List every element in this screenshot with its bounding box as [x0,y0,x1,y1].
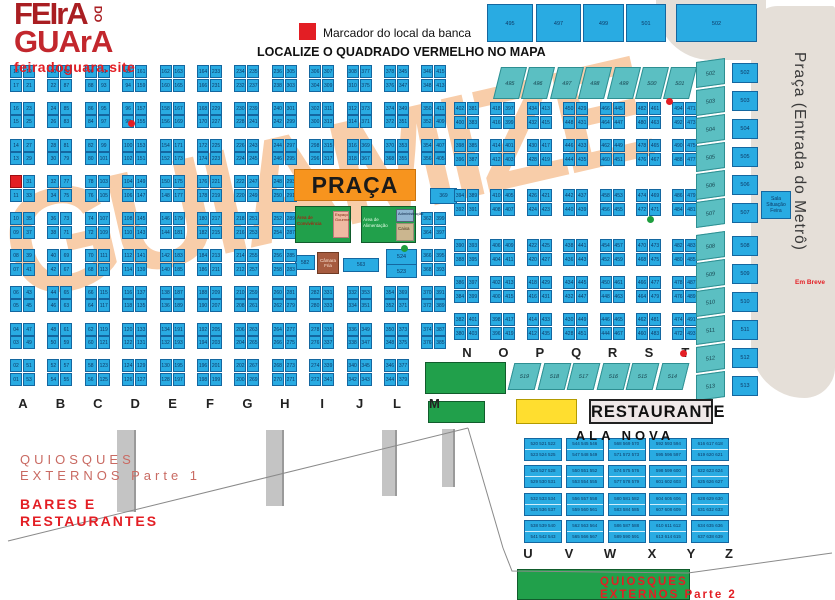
stall-cell-426[interactable]: 426 [527,189,539,202]
stall-cell-370[interactable]: 370 [421,286,433,299]
stall-cell-433[interactable]: 433 [576,139,588,152]
stall-cell-53[interactable]: 53 [23,373,35,386]
stall-cell-464[interactable]: 464 [636,290,648,303]
stall-cell-429[interactable]: 429 [540,276,552,289]
stall-cell-240[interactable]: 240 [272,102,284,115]
stall-cell-121[interactable]: 121 [98,336,110,349]
stall-cell-112[interactable]: 112 [122,249,134,262]
stall-cell-43[interactable]: 43 [23,286,35,299]
stall-cell-161[interactable]: 161 [135,65,147,78]
stall-cell-164[interactable]: 164 [197,65,209,78]
stall-cell-228[interactable]: 228 [234,115,246,128]
ala-nova-block[interactable]: 532 533 534535 536 537 [524,493,562,516]
stall-cell-449[interactable]: 449 [576,313,588,326]
stall-cell-453[interactable]: 453 [613,189,625,202]
stall-cell-347[interactable]: 347 [360,336,372,349]
stall-cell-78[interactable]: 78 [85,175,97,188]
stall-cell-397[interactable]: 397 [467,276,479,289]
stall-cell-80[interactable]: 80 [85,152,97,165]
stall-cell-298[interactable]: 298 [309,139,321,152]
stall-cell-side-510[interactable]: 510 [732,292,758,312]
stall-cell-376[interactable]: 376 [384,79,396,92]
stall-cell-390[interactable]: 390 [454,239,466,252]
stall-cell-435[interactable]: 435 [540,327,552,340]
stall-cell-484[interactable]: 484 [672,203,684,216]
stall-cell-477[interactable]: 477 [649,276,661,289]
stall-cell-393[interactable]: 393 [467,239,479,252]
stall-cell-side-505[interactable]: 505 [732,147,758,167]
stall-cell-368[interactable]: 368 [421,263,433,276]
stall-cell-449[interactable]: 449 [613,139,625,152]
stall-cell-115[interactable]: 115 [98,286,110,299]
stall-cell-258[interactable]: 258 [272,263,284,276]
stall-cell-217[interactable]: 217 [210,212,222,225]
stall-cell-467[interactable]: 467 [613,327,625,340]
stall-cell-460[interactable]: 460 [636,327,648,340]
gate-cell-side-511[interactable]: 511 [696,315,725,345]
stall-cell-407[interactable]: 407 [434,139,446,152]
stall-cell-395[interactable]: 395 [467,253,479,266]
stall-cell-224[interactable]: 224 [234,152,246,165]
stall-cell-389[interactable]: 389 [434,299,446,312]
stall-cell-415[interactable]: 415 [540,116,552,129]
stall-cell-221[interactable]: 221 [210,175,222,188]
stall-cell-332[interactable]: 332 [347,286,359,299]
stall-cell-275[interactable]: 275 [285,336,297,349]
ala-nova-block[interactable]: 586 587 588589 590 591 [608,520,646,543]
stall-cell-262[interactable]: 262 [272,299,284,312]
stall-cell-259[interactable]: 259 [247,286,259,299]
stall-cell-215[interactable]: 215 [210,226,222,239]
stall-cell-22[interactable]: 22 [47,79,59,92]
stall-cell-403[interactable]: 403 [503,153,515,166]
stall-cell-188[interactable]: 188 [197,286,209,299]
stall-cell-399[interactable]: 399 [503,116,515,129]
stall-cell-417[interactable]: 417 [503,313,515,326]
stall-cell-166[interactable]: 166 [197,79,209,92]
stall-cell-277[interactable]: 277 [285,323,297,336]
stall-cell-side-513[interactable]: 513 [732,376,758,396]
stall-cell-139[interactable]: 139 [135,263,147,276]
stall-cell-412[interactable]: 412 [490,153,502,166]
stall-cell-429[interactable]: 429 [576,102,588,115]
stall-cell-252[interactable]: 252 [272,212,284,225]
stall-cell-38[interactable]: 38 [47,226,59,239]
stall-cell-303[interactable]: 303 [285,79,297,92]
stall-cell-49[interactable]: 49 [23,336,35,349]
stall-cell-271[interactable]: 271 [285,373,297,386]
stall-cell-40[interactable]: 40 [47,249,59,262]
stall-cell-135[interactable]: 135 [135,299,147,312]
stall-cell-393[interactable]: 393 [434,263,446,276]
stall-cell-353[interactable]: 353 [397,139,409,152]
stall-cell-308[interactable]: 308 [347,65,359,78]
stall-cell-02[interactable]: 02 [10,359,22,372]
stall-cell-03[interactable]: 03 [10,336,22,349]
stall-cell-383[interactable]: 383 [467,116,479,129]
ala-nova-block[interactable]: 562 563 564565 566 567 [566,520,604,543]
stall-cell-88[interactable]: 88 [85,79,97,92]
stall-cell-160[interactable]: 160 [160,79,172,92]
stall-cell-09[interactable]: 09 [10,226,22,239]
stall-cell-443[interactable]: 443 [576,253,588,266]
stall-cell-307[interactable]: 307 [322,65,334,78]
stall-cell-254[interactable]: 254 [272,226,284,239]
stall-cell-476[interactable]: 476 [672,290,684,303]
stall-cell-349[interactable]: 349 [397,102,409,115]
stall-cell-300[interactable]: 300 [309,115,321,128]
stall-cell-26[interactable]: 26 [47,115,59,128]
stall-cell-311[interactable]: 311 [322,102,334,115]
stall-cell-153[interactable]: 153 [135,139,147,152]
stall-cell-133[interactable]: 133 [135,323,147,336]
stall-cell-338[interactable]: 338 [347,336,359,349]
stall-cell-424[interactable]: 424 [527,203,539,216]
stall-cell-67[interactable]: 67 [60,263,72,276]
stall-cell-top-499[interactable]: 499 [583,4,624,42]
stall-cell-282[interactable]: 282 [309,286,321,299]
stall-cell-219[interactable]: 219 [210,189,222,202]
stall-cell-14[interactable]: 14 [10,139,22,152]
stall-cell-488[interactable]: 488 [672,153,684,166]
stall-cell-432[interactable]: 432 [527,116,539,129]
stall-cell-474[interactable]: 474 [672,313,684,326]
stall-cell-130[interactable]: 130 [160,359,172,372]
stall-cell-71[interactable]: 71 [60,226,72,239]
stall-cell-315[interactable]: 315 [322,139,334,152]
stall-cell-442[interactable]: 442 [563,189,575,202]
stall-cell-side-506[interactable]: 506 [732,175,758,195]
stall-cell-448[interactable]: 448 [600,290,612,303]
stall-cell-346[interactable]: 346 [421,65,433,78]
stall-cell-478[interactable]: 478 [636,139,648,152]
stall-cell-195[interactable]: 195 [173,359,185,372]
stall-cell-454[interactable]: 454 [600,239,612,252]
stall-cell-273[interactable]: 273 [285,359,297,372]
stall-cell-397[interactable]: 397 [503,102,515,115]
stall-cell-33[interactable]: 33 [23,189,35,202]
stall-cell-242[interactable]: 242 [272,115,284,128]
stall-cell-top-502[interactable]: 502 [676,4,757,42]
stall-cell-374[interactable]: 374 [384,102,396,115]
stall-cell-247[interactable]: 247 [247,175,259,188]
stall-cell-side-504[interactable]: 504 [732,119,758,139]
stall-cell-285[interactable]: 285 [285,249,297,262]
stall-cell-467[interactable]: 467 [649,153,661,166]
stall-cell-394[interactable]: 394 [454,189,466,202]
stall-cell-418[interactable]: 418 [490,102,502,115]
stall-cell-34[interactable]: 34 [47,189,59,202]
stall-cell-222[interactable]: 222 [234,175,246,188]
stall-cell-400[interactable]: 400 [490,290,502,303]
stall-cell-183[interactable]: 183 [173,249,185,262]
stall-cell-344[interactable]: 344 [384,373,396,386]
stall-cell-366[interactable]: 366 [421,249,433,262]
gate-cell-519[interactable]: 519 [508,363,542,390]
stall-cell-351[interactable]: 351 [360,299,372,312]
stall-cell-278[interactable]: 278 [309,323,321,336]
stall-cell-125[interactable]: 125 [98,373,110,386]
stall-cell-388[interactable]: 388 [454,253,466,266]
stall-cell-159[interactable]: 159 [135,79,147,92]
stall-cell-250[interactable]: 250 [272,189,284,202]
stall-cell-243[interactable]: 243 [247,139,259,152]
stall-cell-47[interactable]: 47 [23,323,35,336]
stall-cell-245[interactable]: 245 [247,152,259,165]
stall-cell-451[interactable]: 451 [613,153,625,166]
stall-cell-203[interactable]: 203 [210,336,222,349]
stall-cell-143[interactable]: 143 [135,226,147,239]
stall-cell-72[interactable]: 72 [85,226,97,239]
stall-cell-304[interactable]: 304 [309,79,321,92]
stall-cell-391[interactable]: 391 [434,286,446,299]
stall-cell-317[interactable]: 317 [322,152,334,165]
stall-cell-362[interactable]: 362 [421,212,433,225]
stall-cell-401[interactable]: 401 [467,313,479,326]
stall-cell-378[interactable]: 378 [384,65,396,78]
stall-cell-406[interactable]: 406 [490,239,502,252]
stall-cell-239[interactable]: 239 [247,102,259,115]
stall-cell-409[interactable]: 409 [503,239,515,252]
stall-cell-413[interactable]: 413 [503,276,515,289]
stall-cell-419[interactable]: 419 [540,153,552,166]
stall-cell-225[interactable]: 225 [210,139,222,152]
stall-cell-102[interactable]: 102 [122,152,134,165]
ala-nova-block[interactable]: 628 629 630631 632 633 [691,493,729,516]
stall-cell-479[interactable]: 479 [649,290,661,303]
stall-cell-459[interactable]: 459 [613,253,625,266]
stall-cell-463[interactable]: 463 [613,290,625,303]
stall-cell-37[interactable]: 37 [23,226,35,239]
stall-cell-452[interactable]: 452 [600,253,612,266]
stall-cell-440[interactable]: 440 [563,203,575,216]
stall-cell-466[interactable]: 466 [600,102,612,115]
stall-cell-marker[interactable] [10,175,22,188]
stall-cell-216[interactable]: 216 [234,226,246,239]
stall-cell-15[interactable]: 15 [10,115,22,128]
stall-cell-189[interactable]: 189 [173,299,185,312]
gate-cell-side-510[interactable]: 510 [696,287,725,317]
stall-cell-top-495[interactable]: 495 [487,4,533,42]
stall-cell-402[interactable]: 402 [490,276,502,289]
stall-cell-389[interactable]: 389 [467,189,479,202]
stall-cell-59[interactable]: 59 [60,336,72,349]
stall-cell-480[interactable]: 480 [636,116,648,129]
stall-cell-108[interactable]: 108 [122,212,134,225]
stall-cell-351[interactable]: 351 [397,115,409,128]
stall-cell-56[interactable]: 56 [85,373,97,386]
stall-cell-194[interactable]: 194 [197,336,209,349]
stall-cell-261[interactable]: 261 [247,299,259,312]
stall-cell-373[interactable]: 373 [397,323,409,336]
stall-cell-233[interactable]: 233 [210,65,222,78]
stall-cell-152[interactable]: 152 [160,152,172,165]
stall-cell-51[interactable]: 51 [23,359,35,372]
stall-cell-333[interactable]: 333 [322,299,334,312]
stall-cell-432[interactable]: 432 [563,290,575,303]
stall-cell-145[interactable]: 145 [135,212,147,225]
stall-cell-267[interactable]: 267 [247,359,259,372]
ala-nova-block[interactable]: 610 611 612613 614 615 [649,520,687,543]
stall-cell-74[interactable]: 74 [85,212,97,225]
stall-cell-480[interactable]: 480 [672,253,684,266]
stall-cell-428[interactable]: 428 [563,327,575,340]
stall-cell-396[interactable]: 396 [490,327,502,340]
stall-cell-171[interactable]: 171 [173,139,185,152]
stall-cell-55[interactable]: 55 [60,373,72,386]
stall-cell-417[interactable]: 417 [540,139,552,152]
stall-cell-415[interactable]: 415 [434,65,446,78]
stall-cell-204[interactable]: 204 [234,336,246,349]
stall-cell-387[interactable]: 387 [434,323,446,336]
stall-cell-230[interactable]: 230 [234,102,246,115]
stall-cell-270[interactable]: 270 [272,373,284,386]
stall-cell-70[interactable]: 70 [85,249,97,262]
stall-cell-475[interactable]: 475 [649,253,661,266]
stall-cell-469[interactable]: 469 [649,189,661,202]
stall-cell-421[interactable]: 421 [540,189,552,202]
stall-cell-246[interactable]: 246 [272,152,284,165]
stall-cell-434[interactable]: 434 [527,102,539,115]
stall-cell-431[interactable]: 431 [540,290,552,303]
gate-cell-515[interactable]: 515 [626,363,660,390]
ala-nova-block[interactable]: 604 605 606607 608 609 [649,493,687,516]
stall-cell-355[interactable]: 355 [397,152,409,165]
stall-cell-162[interactable]: 162 [160,65,172,78]
stall-cell-411[interactable]: 411 [503,253,515,266]
stall-cell-377[interactable]: 377 [360,65,372,78]
stall-cell-46[interactable]: 46 [47,299,59,312]
stall-cell-top-501[interactable]: 501 [626,4,666,42]
stall-cell-94[interactable]: 94 [122,79,134,92]
stall-cell-490[interactable]: 490 [672,139,684,152]
stall-cell-457[interactable]: 457 [613,239,625,252]
stall-cell-05[interactable]: 05 [10,299,22,312]
stall-cell-65[interactable]: 65 [60,286,72,299]
stall-cell-187[interactable]: 187 [173,286,185,299]
stall-cell-105[interactable]: 105 [98,189,110,202]
stall-cell-178[interactable]: 178 [197,189,209,202]
stall-cell-39[interactable]: 39 [23,249,35,262]
stall-cell-182[interactable]: 182 [197,226,209,239]
stall-cell-345[interactable]: 345 [397,65,409,78]
stall-cell-334[interactable]: 334 [347,299,359,312]
stall-cell-201[interactable]: 201 [210,359,222,372]
stall-cell-218[interactable]: 218 [234,212,246,225]
stall-cell-113[interactable]: 113 [98,263,110,276]
stall-cell-402[interactable]: 402 [454,102,466,115]
stall-cell-148[interactable]: 148 [160,189,172,202]
stall-cell-25[interactable]: 25 [23,115,35,128]
stall-cell-95[interactable]: 95 [98,102,110,115]
stall-cell-448[interactable]: 448 [563,116,575,129]
stall-cell-163[interactable]: 163 [173,65,185,78]
stall-cell-223[interactable]: 223 [210,152,222,165]
stall-cell-109[interactable]: 109 [98,226,110,239]
stall-cell-186[interactable]: 186 [197,263,209,276]
stall-cell-399[interactable]: 399 [467,290,479,303]
stall-cell-386[interactable]: 386 [454,276,466,289]
stall-cell-81[interactable]: 81 [60,139,72,152]
stall-cell-123[interactable]: 123 [98,359,110,372]
stall-cell-368[interactable]: 368 [384,152,396,165]
stall-cell-380[interactable]: 380 [454,327,466,340]
stall-cell-376[interactable]: 376 [421,336,433,349]
stall-cell-446[interactable]: 446 [563,139,575,152]
stall-cell-374[interactable]: 374 [421,323,433,336]
stall-cell-371[interactable]: 371 [397,299,409,312]
stall-cell-198[interactable]: 198 [197,373,209,386]
gate-cell-side-502[interactable]: 502 [696,58,725,88]
stall-cell-425[interactable]: 425 [540,239,552,252]
stall-cell-149[interactable]: 149 [135,175,147,188]
stall-cell-116[interactable]: 116 [122,286,134,299]
stall-cell-146[interactable]: 146 [160,212,172,225]
stall-cell-456[interactable]: 456 [600,203,612,216]
stall-cell-140[interactable]: 140 [160,263,172,276]
stall-cell-126[interactable]: 126 [122,373,134,386]
stall-cell-176[interactable]: 176 [197,175,209,188]
stall-cell-205[interactable]: 205 [210,323,222,336]
stall-cell-226[interactable]: 226 [234,139,246,152]
gate-cell-516[interactable]: 516 [596,363,630,390]
stall-cell-420[interactable]: 420 [527,253,539,266]
ala-nova-block[interactable]: 556 557 558559 560 561 [566,493,604,516]
ala-nova-block[interactable]: 598 599 600601 602 603 [649,465,687,488]
stall-cell-58[interactable]: 58 [85,359,97,372]
stall-cell-266[interactable]: 266 [272,336,284,349]
stall-cell-486[interactable]: 486 [672,189,684,202]
stall-cell-348[interactable]: 348 [421,79,433,92]
stall-cell-42[interactable]: 42 [47,263,59,276]
stall-cell-430[interactable]: 430 [527,139,539,152]
stall-cell-82[interactable]: 82 [85,139,97,152]
stall-cell-155[interactable]: 155 [135,115,147,128]
stall-cell-170[interactable]: 170 [197,115,209,128]
stall-cell-441[interactable]: 441 [576,239,588,252]
stall-cell-470[interactable]: 470 [636,239,648,252]
stall-cell-248[interactable]: 248 [272,175,284,188]
stall-cell-411[interactable]: 411 [434,102,446,115]
stall-cell-23[interactable]: 23 [23,102,35,115]
stall-cell-208[interactable]: 208 [234,299,246,312]
stall-cell-08[interactable]: 08 [10,249,22,262]
stall-cell-306[interactable]: 306 [309,65,321,78]
stall-cell-119[interactable]: 119 [98,323,110,336]
stall-cell-369[interactable]: 369 [397,286,409,299]
stall-cell-372[interactable]: 372 [421,299,433,312]
stall-cell-16[interactable]: 16 [10,102,22,115]
stall-cell-464[interactable]: 464 [600,116,612,129]
stall-cell-279[interactable]: 279 [285,299,297,312]
stall-cell-524[interactable]: 524 [387,250,416,264]
gate-cell-518[interactable]: 518 [537,363,571,390]
stall-cell-11[interactable]: 11 [10,189,22,202]
stall-cell-side-502[interactable]: 502 [732,63,758,83]
stall-cell-57[interactable]: 57 [60,359,72,372]
stall-cell-100[interactable]: 100 [122,139,134,152]
stall-cell-276[interactable]: 276 [309,336,321,349]
stall-cell-129[interactable]: 129 [135,359,147,372]
stall-cell-28[interactable]: 28 [47,139,59,152]
stall-cell-173[interactable]: 173 [173,152,185,165]
stall-cell-172[interactable]: 172 [197,139,209,152]
stall-cell-494[interactable]: 494 [672,102,684,115]
stall-cell-313[interactable]: 313 [322,115,334,128]
stall-cell-13[interactable]: 13 [10,152,22,165]
stall-cell-582[interactable]: 582 [295,255,315,270]
stall-cell-side-512[interactable]: 512 [732,348,758,368]
